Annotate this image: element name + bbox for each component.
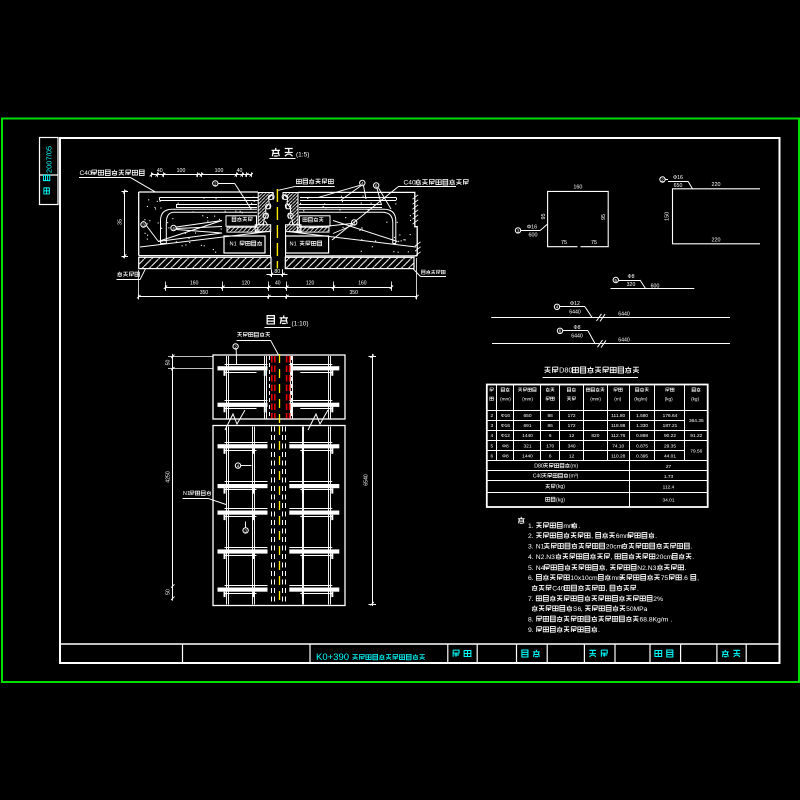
svg-text:C40: C40: [533, 474, 543, 480]
svg-text:160: 160: [573, 185, 582, 191]
svg-text:160: 160: [190, 281, 199, 287]
svg-text:150: 150: [665, 212, 671, 221]
svg-text:Φ16: Φ16: [527, 224, 537, 230]
svg-text:6440: 6440: [569, 309, 581, 315]
svg-text:75: 75: [661, 575, 669, 582]
svg-text:,: ,: [591, 533, 593, 540]
svg-text:.: .: [598, 627, 600, 634]
svg-text:(m): (m): [570, 464, 578, 470]
svg-text:1.580: 1.580: [636, 413, 648, 419]
svg-text:K0+390: K0+390: [316, 652, 349, 663]
svg-text:C40: C40: [404, 180, 416, 187]
svg-text:6: 6: [375, 183, 378, 188]
svg-text:86: 86: [548, 413, 554, 419]
svg-text:8.: 8.: [528, 616, 534, 623]
svg-text:364.35: 364.35: [689, 418, 704, 424]
svg-text:N1: N1: [230, 242, 237, 248]
svg-text:.: .: [691, 543, 693, 550]
svg-text:Φ12: Φ12: [570, 301, 580, 307]
svg-text:820: 820: [591, 433, 599, 439]
svg-text:44.01: 44.01: [664, 454, 676, 460]
svg-text:.: .: [655, 533, 657, 540]
svg-text:79.56: 79.56: [690, 448, 702, 454]
svg-text:5: 5: [490, 443, 493, 449]
svg-text:3: 3: [490, 423, 493, 429]
svg-text:10x10cm: 10x10cm: [570, 575, 598, 582]
svg-text:3: 3: [517, 228, 520, 233]
svg-text:650: 650: [674, 183, 683, 189]
svg-text:0.875: 0.875: [636, 443, 648, 449]
svg-text:112.4: 112.4: [663, 485, 675, 491]
svg-text:6: 6: [490, 454, 493, 460]
svg-text:6mm: 6mm: [616, 533, 631, 540]
svg-text:2.: 2.: [528, 533, 534, 540]
svg-text:40: 40: [157, 168, 163, 174]
svg-text:4: 4: [172, 226, 175, 231]
svg-text:340: 340: [568, 443, 576, 449]
svg-text:120: 120: [242, 281, 251, 287]
svg-text:2: 2: [214, 181, 217, 186]
svg-text:4.: 4.: [528, 554, 534, 561]
svg-text:50MPa: 50MPa: [626, 606, 648, 613]
svg-text:(m³): (m³): [569, 474, 579, 480]
svg-text:mm: mm: [612, 575, 624, 582]
svg-text:D80: D80: [534, 464, 544, 470]
svg-text:N1: N1: [183, 491, 190, 497]
svg-text:35: 35: [118, 219, 124, 225]
svg-text:.: .: [671, 616, 673, 623]
svg-text:172: 172: [568, 423, 576, 429]
svg-text:,: ,: [606, 565, 608, 572]
svg-text:(1:5): (1:5): [296, 152, 309, 159]
svg-text:40: 40: [237, 168, 243, 174]
svg-text:(kg): (kg): [665, 396, 673, 401]
svg-text:6440: 6440: [571, 333, 583, 339]
svg-text:1.73: 1.73: [664, 474, 674, 480]
svg-text:118.98: 118.98: [611, 423, 626, 429]
svg-text:0.395: 0.395: [636, 454, 648, 460]
svg-text:95: 95: [541, 214, 547, 220]
svg-text:(mm): (mm): [500, 396, 511, 401]
svg-text:(kg): (kg): [556, 484, 565, 490]
svg-text:Φ8: Φ8: [502, 454, 509, 460]
svg-text:187.21: 187.21: [663, 423, 678, 429]
svg-text:75: 75: [561, 240, 567, 246]
svg-text:Φ16: Φ16: [673, 175, 683, 181]
svg-text:1.: 1.: [528, 523, 534, 530]
svg-text:12: 12: [569, 433, 575, 439]
svg-text:4: 4: [490, 433, 493, 439]
svg-text:0.888: 0.888: [636, 433, 648, 439]
svg-text:74.10: 74.10: [612, 443, 624, 449]
svg-text:600: 600: [529, 232, 538, 238]
svg-text:Φ16: Φ16: [501, 413, 510, 419]
svg-text:172: 172: [568, 413, 576, 419]
svg-text:20cm: 20cm: [606, 543, 623, 550]
svg-text:1.330: 1.330: [636, 423, 648, 429]
svg-text:220: 220: [712, 182, 721, 188]
svg-text:50: 50: [166, 360, 172, 366]
svg-text:12: 12: [569, 454, 575, 460]
svg-text:.6: .6: [682, 575, 688, 582]
svg-text:6: 6: [559, 329, 562, 334]
svg-text:2007/05: 2007/05: [45, 146, 54, 173]
svg-text:170: 170: [546, 443, 554, 449]
svg-text:691: 691: [523, 423, 531, 429]
svg-text:86: 86: [548, 423, 554, 429]
svg-text:C40: C40: [552, 585, 565, 592]
svg-text:90.22: 90.22: [664, 433, 676, 439]
svg-text:N2.N3: N2.N3: [637, 565, 656, 572]
svg-text:5.: 5.: [528, 565, 534, 572]
svg-text:4: 4: [556, 305, 559, 310]
svg-text:176.64: 176.64: [663, 413, 678, 419]
svg-text:350: 350: [200, 290, 209, 296]
svg-text:Φ8: Φ8: [627, 274, 634, 280]
svg-text:,: ,: [581, 606, 583, 613]
svg-text:6440: 6440: [618, 338, 630, 344]
svg-text:6: 6: [549, 454, 552, 460]
svg-text:2: 2: [661, 177, 664, 182]
svg-text:.: .: [661, 596, 663, 603]
svg-text:6540: 6540: [364, 474, 370, 486]
svg-text:80: 80: [274, 269, 280, 275]
svg-text:.: .: [646, 606, 648, 613]
svg-text:110.28: 110.28: [611, 454, 626, 460]
svg-text:Φ16: Φ16: [501, 423, 510, 429]
svg-text:1440: 1440: [522, 433, 533, 439]
svg-text:5: 5: [615, 278, 618, 283]
svg-text:650: 650: [523, 413, 531, 419]
svg-text:2: 2: [234, 344, 237, 349]
svg-text:75: 75: [591, 240, 597, 246]
svg-text:(1:10): (1:10): [292, 321, 309, 328]
svg-text:N1: N1: [536, 543, 545, 550]
svg-text:Φ12: Φ12: [501, 433, 510, 439]
svg-text:N2.N3: N2.N3: [536, 554, 555, 561]
svg-text:(kg): (kg): [556, 497, 565, 503]
svg-text:112.76: 112.76: [611, 433, 626, 439]
svg-text:3: 3: [244, 528, 247, 533]
svg-text:160: 160: [358, 281, 367, 287]
svg-text:20cm: 20cm: [656, 554, 673, 561]
svg-text:4: 4: [361, 181, 364, 186]
svg-text:321: 321: [523, 443, 531, 449]
svg-text:1440: 1440: [522, 454, 533, 460]
svg-text:7.: 7.: [528, 596, 534, 603]
svg-text:111.80: 111.80: [611, 413, 625, 419]
svg-text:9.: 9.: [528, 627, 534, 634]
svg-text:,: ,: [611, 554, 613, 561]
svg-text:50: 50: [166, 589, 172, 595]
svg-text:4250: 4250: [166, 471, 172, 483]
svg-text:,: ,: [697, 575, 699, 582]
svg-text:320: 320: [627, 282, 636, 288]
svg-text:(mm): (mm): [522, 396, 533, 401]
svg-text:34.01: 34.01: [662, 498, 674, 504]
svg-text:2: 2: [490, 413, 493, 419]
svg-text:N4: N4: [536, 565, 545, 572]
svg-text:C40: C40: [80, 170, 92, 177]
svg-text:95: 95: [601, 214, 607, 220]
svg-text:(m): (m): [614, 396, 621, 401]
svg-text:.: .: [637, 585, 639, 592]
svg-text:Φ8: Φ8: [573, 325, 580, 331]
svg-text:6440: 6440: [618, 311, 630, 317]
svg-text:4: 4: [237, 464, 240, 469]
svg-text:,: ,: [605, 585, 607, 592]
svg-text:220: 220: [712, 238, 721, 244]
svg-text:350: 350: [350, 290, 359, 296]
svg-text:120: 120: [306, 281, 315, 287]
svg-text:6.: 6.: [528, 575, 534, 582]
svg-text:N1: N1: [290, 242, 297, 248]
svg-text:.: .: [578, 523, 580, 530]
svg-text:(kg/m): (kg/m): [634, 396, 648, 401]
svg-text:D80: D80: [559, 366, 572, 375]
svg-text:40: 40: [275, 281, 281, 287]
svg-text:(mm): (mm): [590, 396, 601, 401]
svg-text:6: 6: [549, 433, 552, 439]
svg-text:91.22: 91.22: [690, 433, 702, 439]
svg-text:68.8Kg/m: 68.8Kg/m: [640, 616, 669, 623]
svg-text:3.: 3.: [528, 543, 534, 550]
svg-text:100: 100: [215, 168, 224, 174]
svg-text:29.35: 29.35: [664, 443, 676, 449]
svg-text:100: 100: [177, 168, 186, 174]
svg-text:(kg): (kg): [691, 396, 699, 401]
svg-text:3: 3: [142, 222, 145, 227]
svg-text:.: .: [692, 554, 694, 561]
svg-text:27: 27: [666, 464, 672, 470]
svg-text:Φ8: Φ8: [502, 443, 509, 449]
svg-text:.: .: [685, 565, 687, 572]
